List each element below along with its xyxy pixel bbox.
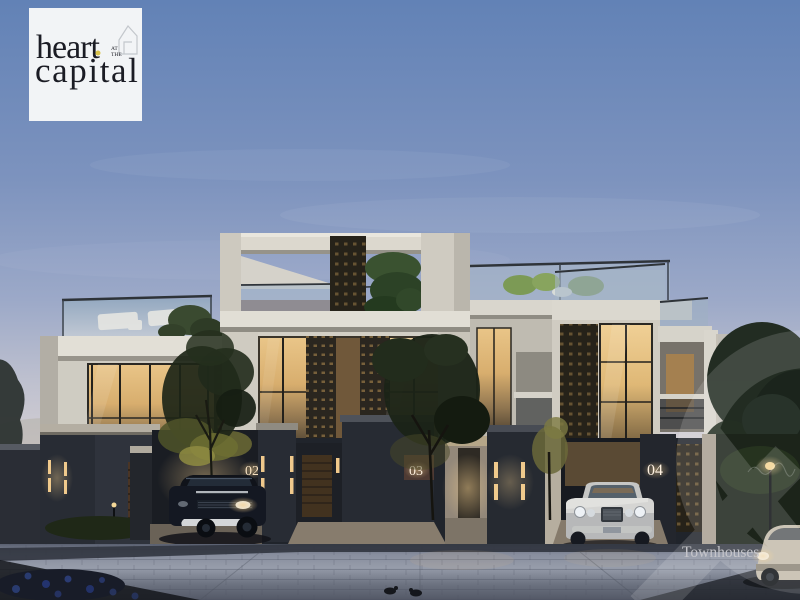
svg-text:Townhouses: Townhouses bbox=[682, 544, 759, 561]
svg-text:capital: capital bbox=[35, 51, 139, 90]
svg-text:04: 04 bbox=[647, 462, 663, 479]
svg-text:THE: THE bbox=[111, 52, 122, 58]
